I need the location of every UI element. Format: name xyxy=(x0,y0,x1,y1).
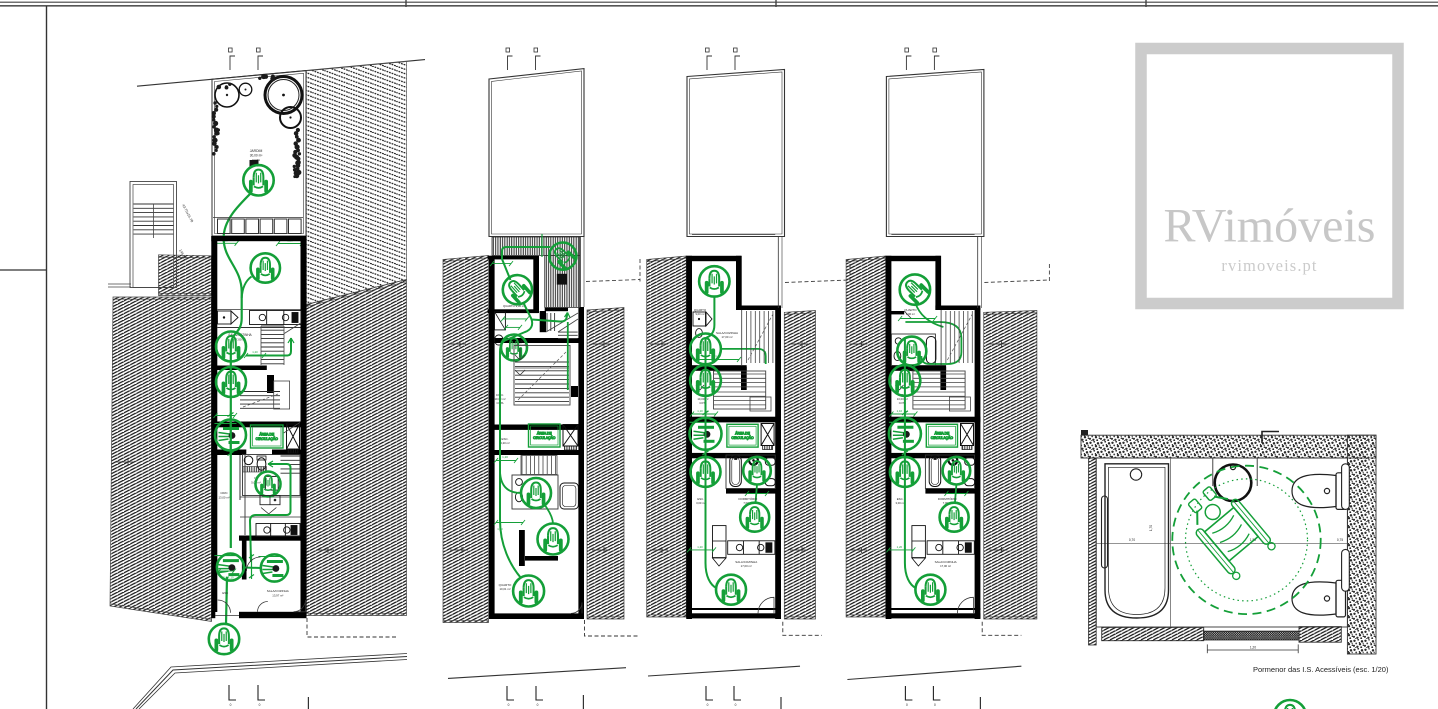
svg-text:I.S.: I.S. xyxy=(519,339,523,343)
svg-text:1,70: 1,70 xyxy=(1149,525,1153,531)
svg-text:ESC.: ESC. xyxy=(897,497,904,501)
svg-text:ESC.: ESC. xyxy=(697,497,704,501)
svg-text:ESC: ESC xyxy=(222,591,228,595)
svg-text:CIRCULAÇÃO: CIRCULAÇÃO xyxy=(931,435,954,440)
svg-text:ÁREA DE: ÁREA DE xyxy=(935,432,950,436)
svg-text:CIRCULAÇÃO: CIRCULAÇÃO xyxy=(533,435,556,440)
svg-text:1,50: 1,50 xyxy=(497,527,503,531)
svg-text:0: 0 xyxy=(934,703,936,707)
svg-text:43.75x16.70: 43.75x16.70 xyxy=(181,204,194,223)
svg-text:3,00 m²: 3,00 m² xyxy=(696,501,705,505)
svg-text:3,00 m²: 3,00 m² xyxy=(896,501,905,505)
svg-text:9,00 m²: 9,00 m² xyxy=(695,312,704,316)
svg-text:13,97 m²: 13,97 m² xyxy=(272,594,283,598)
svg-text:1,20: 1,20 xyxy=(697,545,703,549)
svg-text:Pormenor das I.S. Acessíveis (: Pormenor das I.S. Acessíveis (esc. 1/20) xyxy=(1253,665,1389,674)
svg-text:1,20: 1,20 xyxy=(502,455,508,459)
svg-text:1,10: 1,10 xyxy=(697,409,703,413)
svg-text:0: 0 xyxy=(906,703,908,707)
svg-text:10,00 m²: 10,00 m² xyxy=(897,397,908,401)
svg-text:17,00 m²: 17,00 m² xyxy=(721,335,732,339)
svg-text:DORMITÓRIO: DORMITÓRIO xyxy=(938,496,958,501)
svg-text:3,20 m²: 3,20 m² xyxy=(500,441,510,445)
svg-text:CIRCULAÇÃO: CIRCULAÇÃO xyxy=(256,436,279,441)
svg-text:1,20: 1,20 xyxy=(252,350,258,354)
svg-text:1,10: 1,10 xyxy=(897,409,903,413)
svg-text:QUARTO: QUARTO xyxy=(694,308,707,312)
svg-text:CIRC: CIRC xyxy=(220,491,228,495)
svg-text:rvimoveis.pt: rvimoveis.pt xyxy=(1221,256,1317,275)
svg-text:17,00 m²: 17,00 m² xyxy=(741,564,752,568)
svg-text:30,00 m²: 30,00 m² xyxy=(250,154,263,158)
svg-text:0,70: 0,70 xyxy=(1129,538,1135,542)
svg-text:0: 0 xyxy=(735,703,737,707)
svg-text:0,75: 0,75 xyxy=(1337,538,1343,542)
svg-text:DORMITÓRIO: DORMITÓRIO xyxy=(739,496,759,501)
svg-text:QUARTO: QUARTO xyxy=(904,308,917,312)
svg-text:RVimóveis: RVimóveis xyxy=(1164,200,1376,253)
svg-text:0: 0 xyxy=(259,703,261,707)
svg-text:ÁREA DE: ÁREA DE xyxy=(537,432,552,436)
svg-text:1,20: 1,20 xyxy=(897,545,903,549)
svg-text:0: 0 xyxy=(537,703,539,707)
svg-text:0: 0 xyxy=(230,703,232,707)
svg-text:0: 0 xyxy=(508,703,510,707)
svg-text:1,20: 1,20 xyxy=(1250,646,1256,650)
svg-text:1,20: 1,20 xyxy=(715,354,721,358)
svg-text:ÁREA DE: ÁREA DE xyxy=(259,433,274,437)
svg-text:CIRCULAÇÃO: CIRCULAÇÃO xyxy=(731,435,754,440)
svg-text:13,00 m²: 13,00 m² xyxy=(218,496,229,500)
svg-text:10,01 m²: 10,01 m² xyxy=(499,587,510,591)
svg-text:ÁREA DE: ÁREA DE xyxy=(735,432,750,436)
svg-text:10,00 m²: 10,00 m² xyxy=(697,397,708,401)
svg-text:SALA/COZINHA: SALA/COZINHA xyxy=(267,589,289,593)
svg-text:JARDIM: JARDIM xyxy=(250,149,263,153)
svg-text:0: 0 xyxy=(707,703,709,707)
svg-text:1,10: 1,10 xyxy=(228,576,234,580)
svg-text:17,00 m²: 17,00 m² xyxy=(940,564,951,568)
